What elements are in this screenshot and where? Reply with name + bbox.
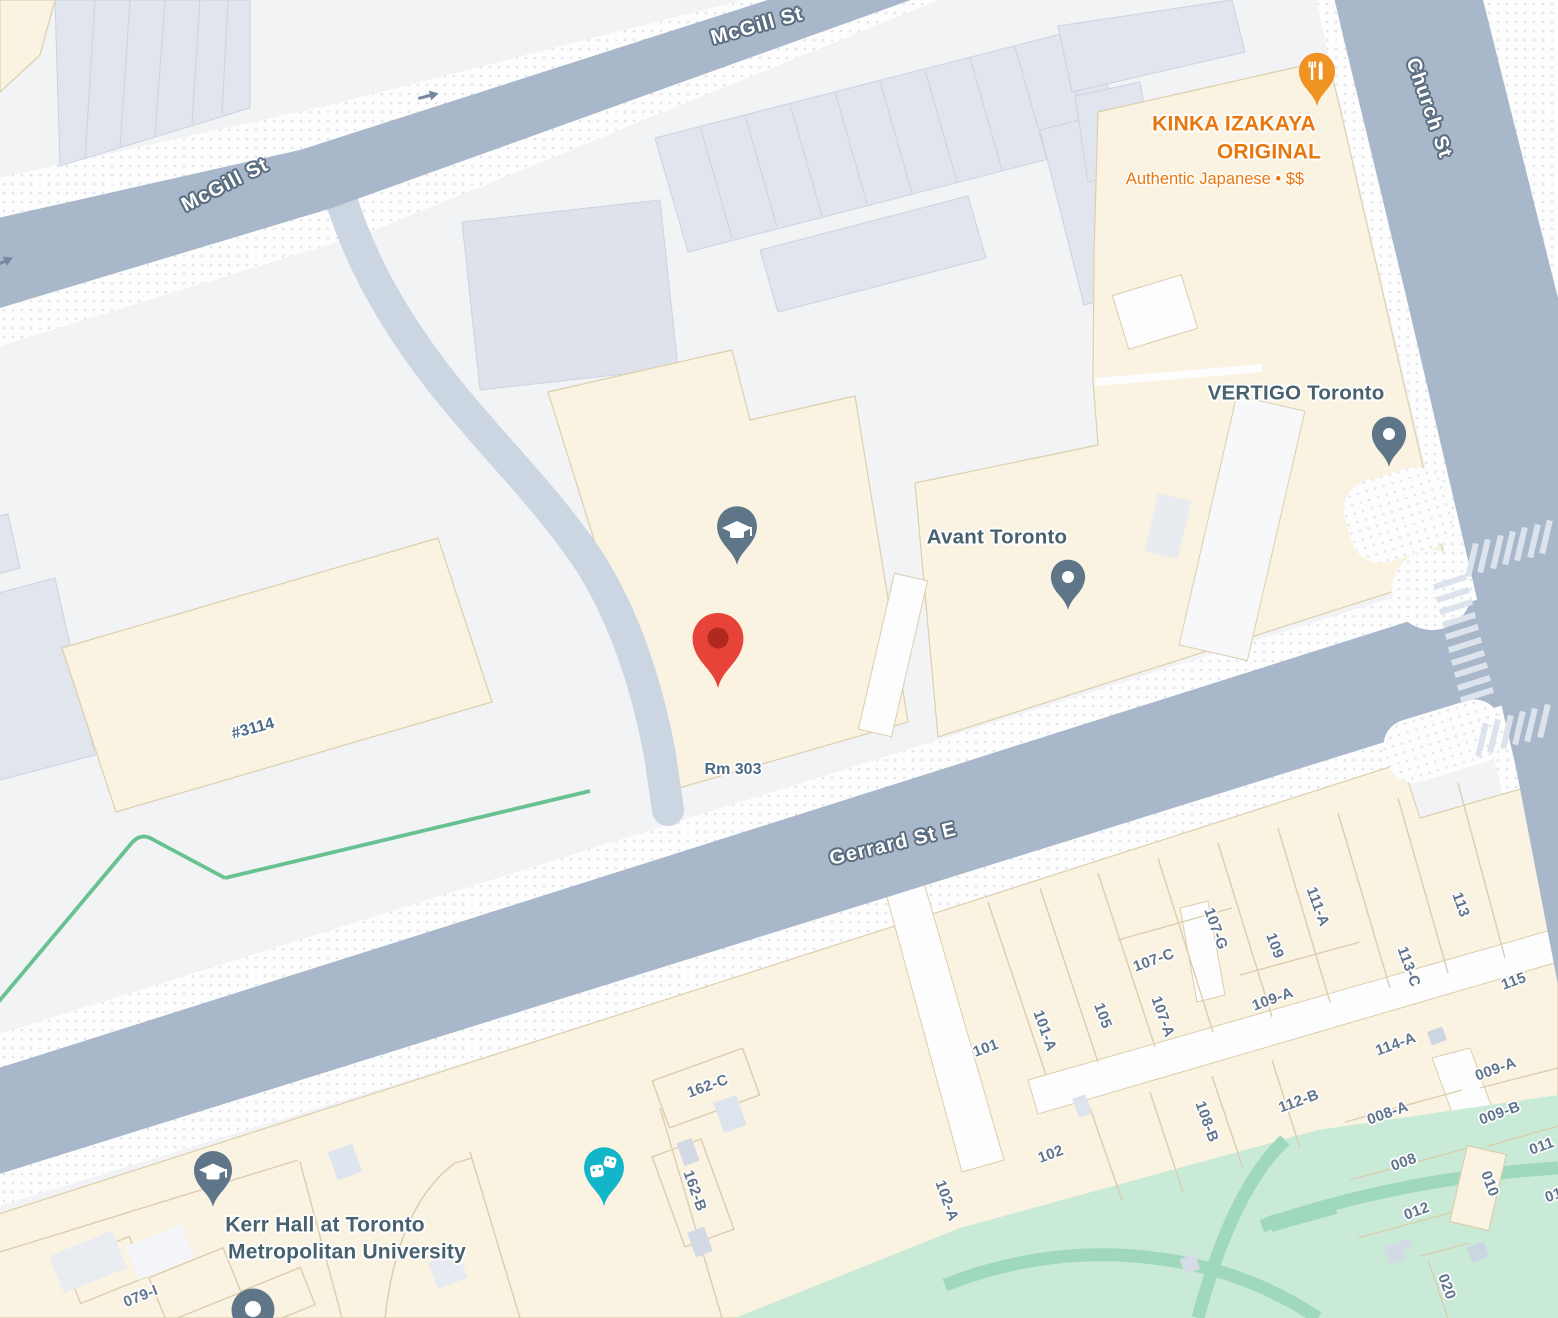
room-label-rm303: Rm 303 bbox=[705, 761, 762, 779]
poi-label-kinka-line2[interactable]: ORIGINAL bbox=[1217, 140, 1321, 163]
map-graphics bbox=[0, 0, 1558, 1318]
poi-label-kerr-line2[interactable]: Metropolitan University bbox=[228, 1240, 466, 1263]
map-canvas[interactable]: McGill St McGill St Church St Gerrard St… bbox=[0, 0, 1558, 1318]
poi-label-vertigo[interactable]: VERTIGO Toronto bbox=[1208, 383, 1385, 406]
poi-label-kerr-line1[interactable]: Kerr Hall at Toronto bbox=[225, 1213, 425, 1236]
poi-label-kinka-line1[interactable]: KINKA IZAKAYA bbox=[1152, 112, 1316, 135]
poi-label-avant[interactable]: Avant Toronto bbox=[927, 527, 1067, 550]
poi-label-kinka-subtitle: Authentic Japanese • $$ bbox=[1126, 170, 1304, 188]
